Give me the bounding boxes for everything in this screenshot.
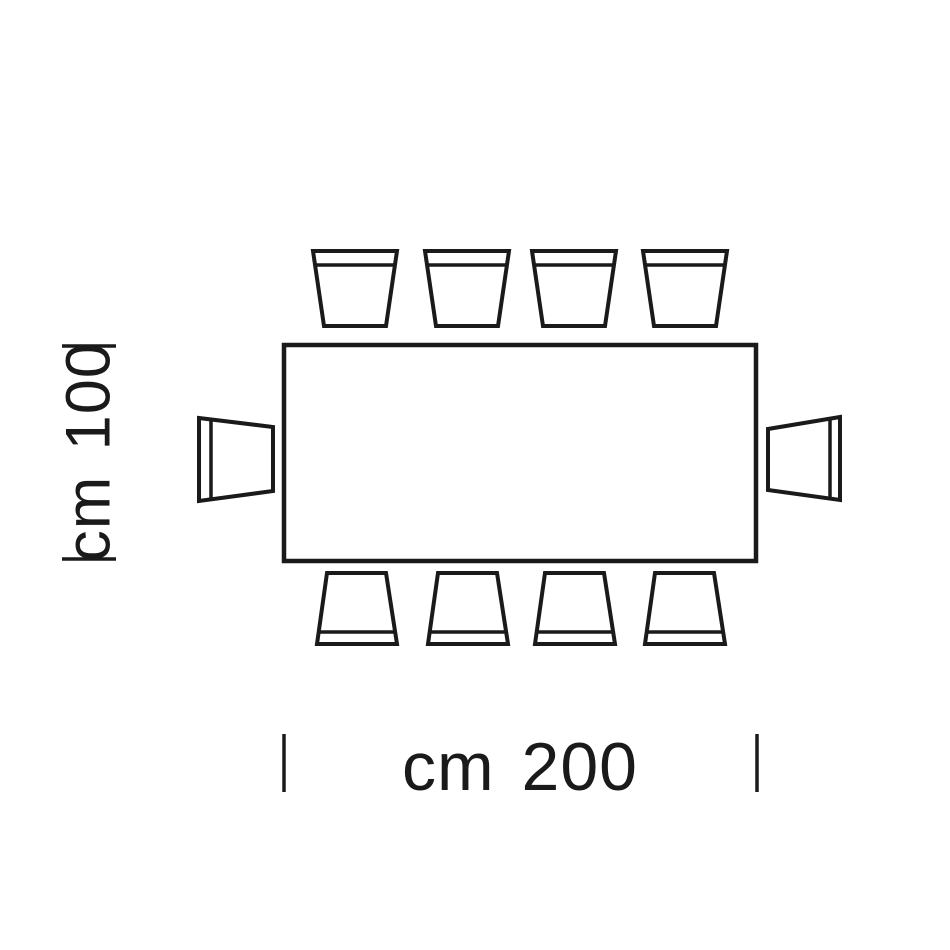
chair-bottom-1 [317,573,397,644]
chair-top-2 [425,251,509,326]
chair-bottom-2 [428,573,508,644]
chair-top-4 [643,251,727,326]
chair-top-1 [313,251,397,326]
depth-dimension-label: cm 100 [58,342,121,562]
chair-bottom-3 [535,573,615,644]
chair-top-3 [532,251,616,326]
chair-left [199,418,273,501]
width-dimension-label: cm 200 [402,733,638,801]
table-top [284,345,756,561]
diagram-canvas: cm 100 cm 200 [0,0,950,950]
chair-bottom-4 [645,573,725,644]
chair-right [768,417,840,500]
table-plan-svg [0,0,950,950]
